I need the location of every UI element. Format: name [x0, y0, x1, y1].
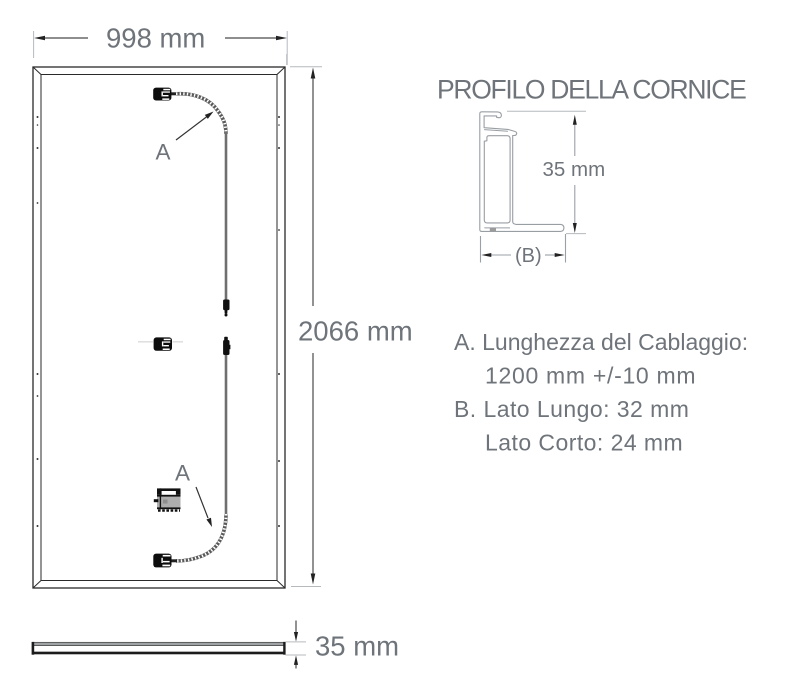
svg-text:1200 mm +/-10 mm: 1200 mm +/-10 mm [485, 363, 696, 389]
svg-text:Lato Corto: 24 mm: Lato Corto: 24 mm [485, 430, 683, 456]
svg-text:35 mm: 35 mm [315, 631, 399, 662]
svg-text:998 mm: 998 mm [106, 23, 205, 54]
svg-text:35 mm: 35 mm [543, 158, 606, 181]
svg-text:A: A [175, 461, 190, 486]
svg-text:2066 mm: 2066 mm [298, 316, 413, 347]
svg-text:PROFILO DELLA CORNICE: PROFILO DELLA CORNICE [437, 75, 746, 105]
svg-text:A: A [156, 140, 171, 165]
svg-text:B. Lato Lungo: 32 mm: B. Lato Lungo: 32 mm [454, 396, 689, 422]
svg-text:(B): (B) [515, 245, 542, 267]
svg-text:A. Lunghezza del Cablaggio:: A. Lunghezza del Cablaggio: [454, 329, 748, 355]
